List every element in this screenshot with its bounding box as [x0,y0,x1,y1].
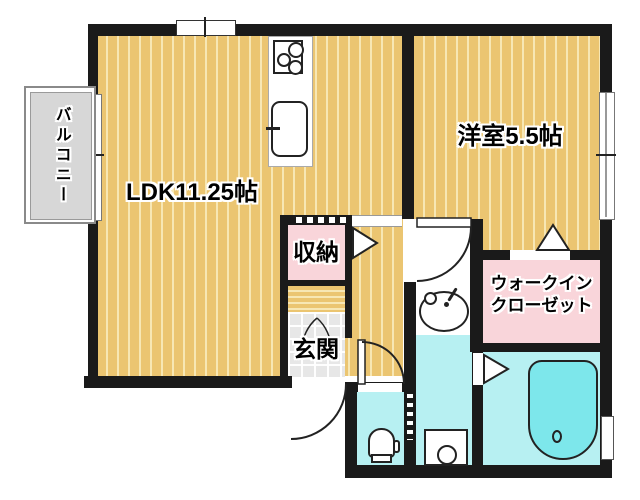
western-room-label: 洋室5.5帖 [425,124,595,150]
wall-wic-bottom [483,343,612,352]
wall-ldk-bottom [84,376,292,388]
wall-storage-bottom [288,280,352,286]
washing-machine-door-icon [437,445,457,465]
walk-in-closet-label-line2: クローゼット [483,295,600,317]
toilet-knob-icon [393,440,400,453]
wall-lower-bottom [345,465,612,478]
stove-burner [288,60,303,75]
wall-left-lower [88,218,98,388]
walk-in-closet-label-line1: ウォークイン [483,273,600,295]
wall-divider-upper [402,24,414,219]
opening-toilet-door [358,383,402,392]
washbasin-drain-icon [444,302,449,307]
window-bath [601,416,614,460]
toilet-base-icon [371,454,392,463]
kitchen-faucet-icon [266,127,280,130]
entrance-step [288,286,345,312]
opening-front-door [292,377,345,388]
balcony-deck: バルコニー [30,92,92,220]
window-top-tick [204,17,206,37]
bathtub-drain-icon [552,430,562,443]
stove-burner [288,42,304,58]
ldk-label: LDK11.25帖 [97,180,287,206]
bathtub-icon [528,360,598,460]
balcony-label: バルコニー [31,93,91,219]
wall-left-upper [88,24,98,95]
floor-plan: バルコニー LDK11.25帖 洋室5.5帖 収納 玄関 ウォークイン [0,0,640,500]
balcony: バルコニー [24,86,96,224]
wall-top [88,24,612,36]
opening-wic-door [510,250,570,260]
window-top [176,20,236,36]
wall-wic-left [470,219,483,352]
storage-label: 収納 [286,240,346,265]
window-western [599,92,615,220]
front-door-arc [291,384,346,439]
opening-hall [352,215,402,227]
opening-bath-door [473,353,483,385]
washbasin-knob-icon [424,292,437,305]
open-boundary-dashes [296,217,350,223]
entrance-label: 玄関 [286,337,346,362]
toilet-partition-dots [407,394,413,440]
window-western-tick [596,154,616,156]
walk-in-closet-label: ウォークイン クローゼット [483,273,600,317]
wall-lower-left [345,388,357,478]
